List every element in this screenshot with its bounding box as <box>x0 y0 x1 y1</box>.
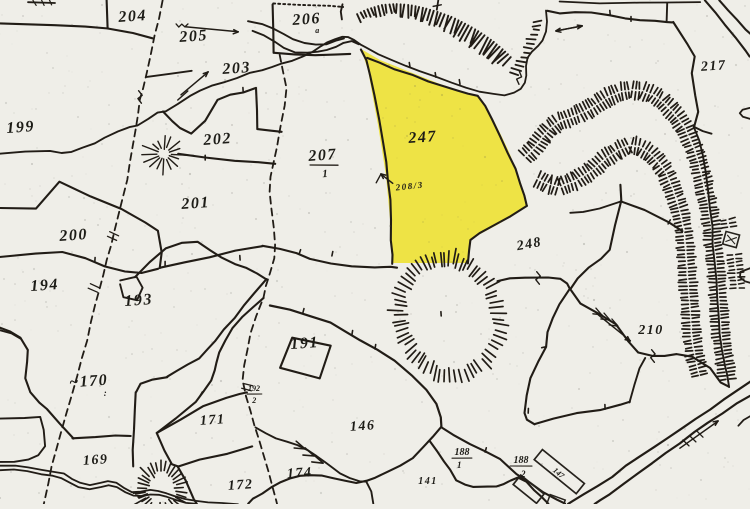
svg-text:192: 192 <box>248 384 260 393</box>
svg-text:1: 1 <box>457 460 463 470</box>
svg-text:202: 202 <box>202 130 233 149</box>
svg-text:174: 174 <box>287 465 313 482</box>
svg-text:146: 146 <box>350 418 376 435</box>
svg-text:~170: ~170 <box>69 372 109 392</box>
svg-text:171: 171 <box>200 412 226 429</box>
svg-text:191: 191 <box>290 334 320 353</box>
svg-text:a: a <box>315 26 321 35</box>
svg-text:199: 199 <box>6 118 36 137</box>
svg-text:210: 210 <box>637 323 664 338</box>
svg-text::: : <box>104 388 109 398</box>
svg-text:188: 188 <box>455 447 470 458</box>
svg-text:169: 169 <box>83 452 109 469</box>
svg-text:2: 2 <box>251 396 258 405</box>
svg-text:200: 200 <box>58 226 89 245</box>
svg-text:172: 172 <box>228 477 254 494</box>
svg-text:201: 201 <box>180 194 211 213</box>
svg-text:203: 203 <box>221 59 252 78</box>
svg-text:247: 247 <box>407 128 438 147</box>
svg-text:194: 194 <box>30 276 60 295</box>
svg-text:205: 205 <box>178 27 209 46</box>
svg-text:2: 2 <box>520 469 527 479</box>
svg-text:141: 141 <box>418 476 438 487</box>
svg-text:188: 188 <box>514 455 529 466</box>
svg-text:217: 217 <box>700 58 727 75</box>
svg-text:204: 204 <box>117 7 148 26</box>
svg-text:193: 193 <box>124 291 154 310</box>
svg-text:1: 1 <box>322 168 330 180</box>
svg-text:207: 207 <box>307 146 338 165</box>
